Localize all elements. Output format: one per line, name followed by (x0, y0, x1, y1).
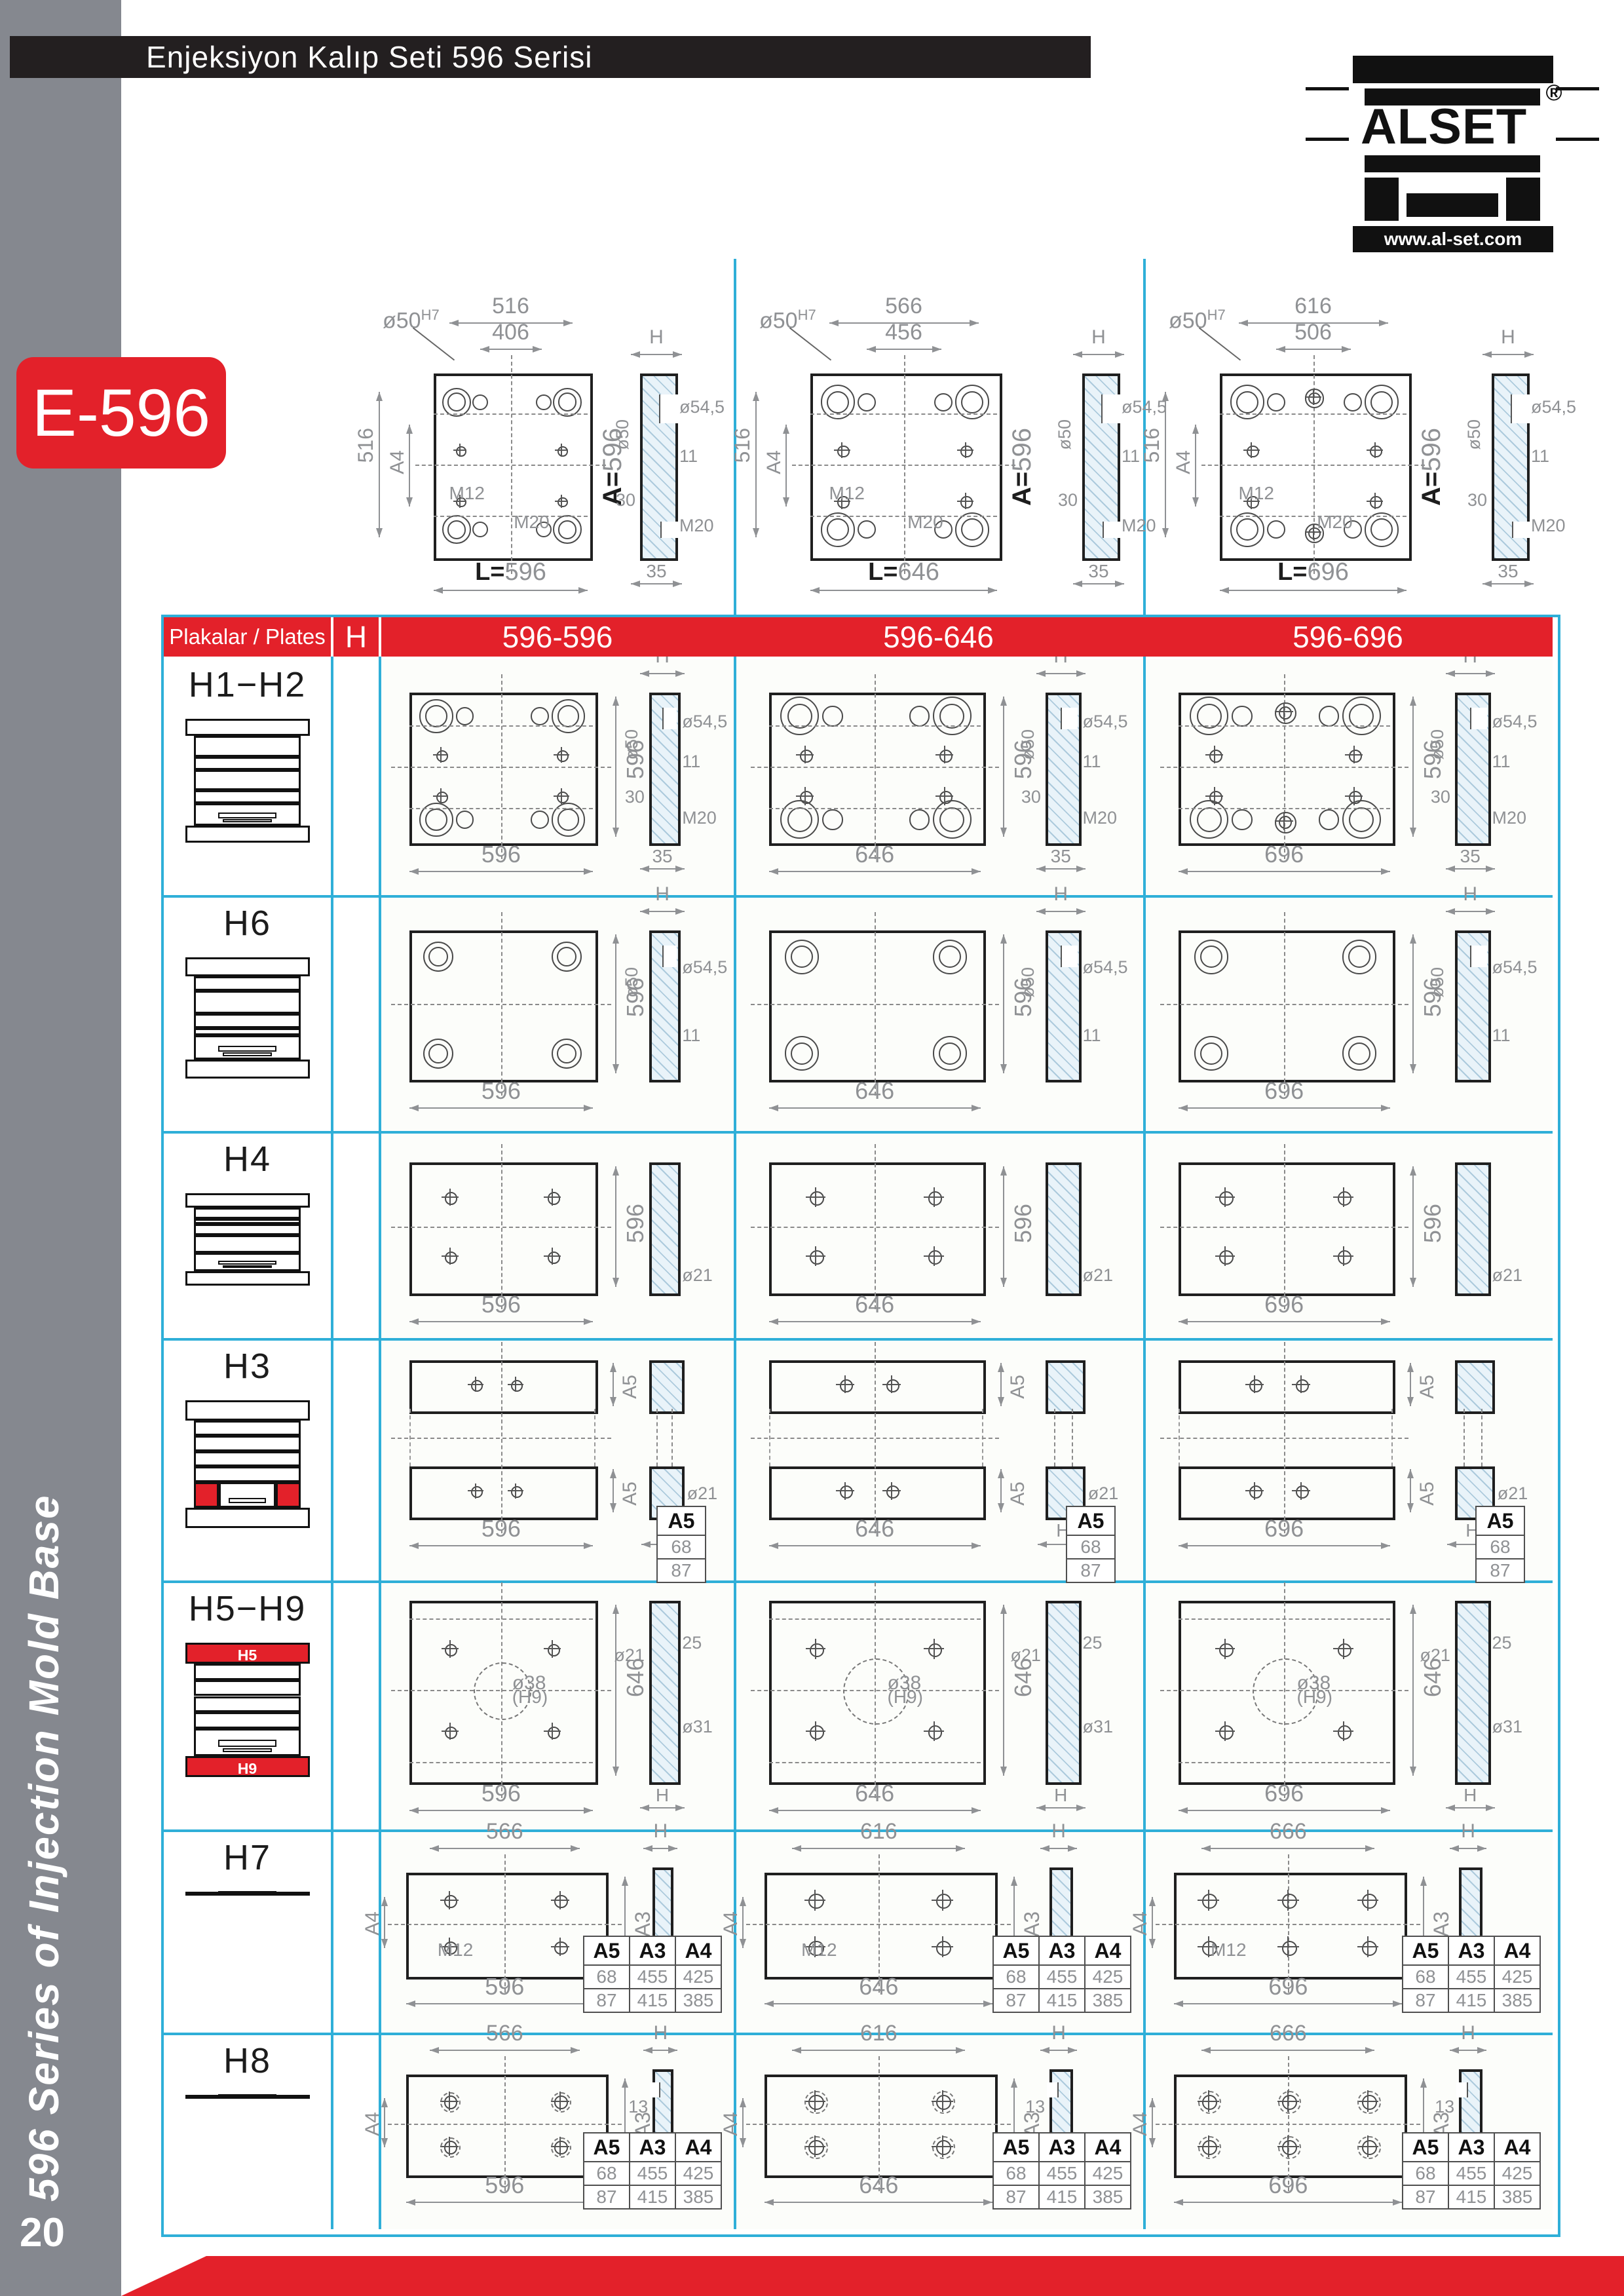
dimension-label: 696 (1174, 2172, 1402, 2199)
table-header-h: H (333, 617, 379, 657)
row-label: H6 (164, 903, 331, 944)
dimension-label: 566 (430, 1819, 580, 1845)
side-label: 11 (1083, 1025, 1101, 1046)
drawing-cell: 666A4A3M12696HM12A5A3A46845542587415385 (1146, 1832, 1553, 2033)
side-label: 13 (597, 2097, 648, 2117)
hole-cross-line (1214, 746, 1215, 763)
dimension-label: 596 (622, 1204, 649, 1243)
center-line (751, 1004, 999, 1005)
mini-table-header: A5 (584, 2133, 630, 2162)
hole-cross-line (815, 1721, 816, 1741)
side-label: 11 (1083, 752, 1101, 772)
side-label: 13 (1403, 2097, 1454, 2117)
side-dim-bottom: 35 (1032, 846, 1089, 867)
hole-mark (810, 1250, 824, 1265)
hole-mark (548, 1644, 560, 1656)
hole-mark (552, 1039, 582, 1069)
hole-mark (1342, 697, 1381, 735)
dimension-line (1450, 1848, 1486, 1849)
stack-ejector (219, 1482, 276, 1508)
dimension-label: 646 (769, 1291, 981, 1318)
hole-cross-line (515, 1377, 516, 1392)
row-label-cell: H1−H2 (164, 657, 331, 895)
drawing-cell: ø38(H9)64664625ø31ø21H (736, 1583, 1143, 1829)
side-dim-h: H (1446, 1820, 1490, 1843)
side-label: ø21 (1492, 1265, 1523, 1286)
mold-stack-icon (185, 1193, 310, 1286)
dashed-line (1179, 725, 1390, 727)
dimension-line (1179, 1545, 1390, 1546)
mini-table-value: 415 (630, 2185, 675, 2209)
hole-mark (531, 811, 549, 829)
side-label: 25 (682, 1633, 702, 1653)
row-label-cell: H6 (164, 895, 331, 1131)
stack-plate (185, 1193, 310, 1208)
mini-table-value: 68 (1476, 1535, 1524, 1559)
hole-cross-line (934, 1246, 935, 1266)
side-label: ø54,5 (1492, 712, 1538, 732)
hole-mark (1194, 1036, 1228, 1070)
side-label: 11 (682, 752, 700, 772)
dimension-label: A5 (619, 1375, 641, 1399)
spec-table: H1−H2475767778797107117127596596Hø54,511… (0, 0, 1624, 2296)
ejector-plate (218, 1046, 276, 1052)
hole-inner (791, 946, 813, 968)
rail-front-view (769, 1466, 986, 1520)
hole-inner (557, 705, 579, 727)
dimension-line (769, 1107, 981, 1109)
center-line (1160, 1438, 1408, 1439)
mini-table-value: 68 (1403, 2162, 1448, 2185)
stack-plate (185, 1508, 310, 1528)
hole-mark (822, 809, 842, 830)
stack-plate (194, 1224, 301, 1235)
dimension-line (1410, 1469, 1411, 1512)
dashed-line (769, 1618, 981, 1620)
dimension-line (613, 1363, 614, 1406)
center-line (751, 767, 999, 768)
row-label-cell: H5−H9H5H9 (164, 1580, 331, 1829)
dimension-line (615, 1605, 616, 1776)
side-label: ø21 (1399, 1645, 1450, 1666)
dimension-label: A3 (1020, 1911, 1044, 1937)
mini-table-value: 425 (1494, 1965, 1540, 1989)
hole-cross-line (1287, 1936, 1289, 1958)
dimension-label: ø50 (1427, 967, 1448, 998)
dimension-label: 646 (769, 1780, 981, 1807)
dimension-label: 646 (769, 1077, 981, 1105)
mini-table-header: A3 (630, 1936, 675, 1965)
rail-front-view (1179, 1466, 1395, 1520)
dashed-line (656, 1409, 658, 1467)
side-dim-h: H (1442, 883, 1499, 906)
plate-side-view (649, 1601, 681, 1786)
dimension-label: A4 (362, 1911, 384, 1936)
rail-front-view (769, 1360, 986, 1414)
hole-mark (785, 940, 819, 974)
plate-front-view (1179, 1162, 1395, 1296)
hole-cross-line (844, 1375, 846, 1393)
dimension-label: 646 (765, 1973, 992, 2000)
dashed-line (769, 725, 981, 727)
a5-a3-a4-table: A5A3A46845542587415385 (1402, 1936, 1541, 2013)
plate-label: M12 (801, 1940, 837, 1961)
dimension-line (769, 1321, 981, 1322)
dimension-label: 666 (1201, 1819, 1374, 1845)
hole-mark (531, 707, 549, 725)
mini-table-value: 415 (1448, 2185, 1494, 2209)
hole-inner (1197, 807, 1222, 832)
dimension-label: 696 (1179, 841, 1390, 868)
mini-table-header: A5 (993, 1936, 1039, 1965)
dimension-label: A4 (1129, 2112, 1152, 2136)
table-header-col-596-596: 596-596 (381, 617, 734, 657)
ejector-plate (229, 1498, 266, 1504)
hole-inner (939, 946, 961, 968)
mini-table-value: 87 (993, 1989, 1039, 2012)
plate-side-view (649, 1162, 681, 1296)
hole-cross-line (1367, 1890, 1369, 1911)
stack-plate (194, 757, 301, 770)
hole-cross-line (944, 787, 945, 805)
dimension-line (615, 934, 616, 1073)
hole-inner (1348, 946, 1370, 968)
hole-mark (436, 750, 448, 762)
dashed-line (769, 808, 981, 809)
dimension-line (1152, 2098, 1153, 2147)
side-label: 11 (1492, 1025, 1511, 1046)
drawing-cell: 596596Hø54,511ø50 (381, 898, 734, 1131)
dimension-line (640, 911, 685, 912)
mini-table-header: A3 (630, 2133, 675, 2162)
dimension-line (1412, 1605, 1414, 1776)
side-label: ø21 (1498, 1483, 1528, 1504)
hole-mark (1362, 1941, 1377, 1956)
side-label: ø54,5 (1083, 712, 1128, 732)
hole-mark (1232, 809, 1252, 830)
hole-cross-line (559, 1938, 561, 1956)
hole-inner (428, 1044, 448, 1063)
dashed-line (769, 1762, 981, 1763)
hole-cross-line (942, 1890, 943, 1911)
dashed-line (1054, 1409, 1055, 1467)
hole-mark (471, 1486, 483, 1498)
hole-cross-line (552, 1248, 553, 1265)
side-dim-h: H (1036, 1820, 1081, 1843)
dimension-label: 596 (1010, 1204, 1037, 1243)
a5-table: A56887 (1475, 1506, 1525, 1583)
hole-mark (822, 706, 842, 726)
dimension-label: A4 (1129, 1911, 1152, 1936)
hole-inner (787, 807, 812, 832)
stack-plate (194, 1014, 301, 1028)
hole-cross-line (1343, 1246, 1344, 1266)
hole-mark (554, 1895, 568, 1909)
side-label: 11 (682, 1025, 700, 1046)
stack-plate-label: H5 (187, 1645, 308, 1662)
hole-inner (557, 809, 579, 830)
stack-plate (194, 1421, 301, 1436)
rail-side-view (1046, 1360, 1086, 1414)
hole-mark (808, 1894, 823, 1909)
side-label: ø54,5 (682, 712, 727, 732)
side-dim-h: H (1446, 2022, 1490, 2044)
side-dim-h: H (1036, 2022, 1081, 2044)
stack-plate (194, 1466, 301, 1482)
dimension-label: A3 (1429, 1911, 1454, 1937)
mini-table-value: 87 (1067, 1559, 1115, 1582)
hole-mark (419, 699, 453, 733)
side-label: M20 (1083, 808, 1118, 828)
hole-inner (939, 1043, 961, 1065)
center-line (1160, 1004, 1408, 1005)
a5-a3-a4-table: A5A3A46845542587415385 (992, 2132, 1131, 2210)
hole-mark (939, 750, 953, 763)
dimension-label: 596 (406, 1973, 603, 2000)
dashed-line (409, 1618, 593, 1620)
center-line (391, 1004, 611, 1005)
center-line (391, 767, 611, 768)
dashed-line (409, 725, 593, 727)
dimension-line (1036, 868, 1086, 870)
dimension-label: 696 (1174, 1973, 1402, 2000)
counterbore-notch (1470, 946, 1486, 967)
mini-table-header: A3 (1039, 1936, 1085, 1965)
row-label: H3 (164, 1346, 331, 1387)
row-label-cell: H4 (164, 1131, 331, 1338)
center-line (1156, 1924, 1420, 1925)
dimension-line (1412, 697, 1414, 837)
hole-cross-line (944, 746, 945, 763)
a5-table: A56887 (656, 1506, 706, 1583)
center-bore-label: (H9) (512, 1687, 548, 1708)
hole-mark (1342, 1036, 1376, 1070)
dashed-line (409, 1762, 593, 1763)
dimension-line (430, 1848, 580, 1849)
mini-table-value: 87 (657, 1559, 706, 1582)
plate-label: M12 (438, 1940, 473, 1961)
hole-cross-line (1343, 1187, 1344, 1207)
bore-notch (1047, 2082, 1058, 2097)
dimension-line (406, 2202, 603, 2203)
hole-cross-line (1300, 1375, 1302, 1393)
drawing-cell: 646596Hø54,511ø50 (736, 898, 1143, 1131)
dimension-line (1179, 871, 1390, 872)
mini-table-value: 385 (1494, 1989, 1540, 2012)
dimension-line (430, 2050, 580, 2051)
dimension-line (640, 673, 685, 674)
side-dim-bottom: H (1442, 1785, 1499, 1806)
drawing-cell: 616A4A3646Hø12,513ø18,5A5A3A468455425874… (736, 2035, 1143, 2229)
mini-table-header: A4 (675, 1936, 721, 1965)
side-dim-bottom: 35 (636, 846, 689, 867)
hole-cross-line (559, 1891, 561, 1909)
a5-a3-a4-table: A5A3A46845542587415385 (583, 1936, 722, 2013)
plate-front-view (406, 1873, 609, 1980)
catalog-page: { "page": { "title": "Enjeksiyon Kalıp S… (0, 0, 1624, 2296)
hole-inner (1200, 1043, 1222, 1065)
dimension-line (1003, 697, 1004, 837)
dashed-line (1481, 1409, 1482, 1467)
row-label: H7 (164, 1837, 331, 1878)
bottom-red-band (121, 2256, 1624, 2296)
dimension-label: 646 (769, 841, 981, 868)
center-line (746, 1924, 1011, 1925)
hole-mark (552, 699, 586, 733)
drawing-cell: 566A4A3M12596HM12A5A3A46845542587415385 (381, 1832, 734, 2033)
center-line (388, 2124, 622, 2125)
hole-cross-line (1214, 787, 1215, 805)
bore-notch (1456, 2082, 1467, 2097)
mini-table-value: 87 (993, 2185, 1039, 2209)
counterbore-notch (662, 946, 677, 967)
hole-inner (557, 947, 576, 966)
side-label: M20 (682, 808, 717, 828)
side-label: 11 (1492, 752, 1511, 772)
dimension-line (1450, 2050, 1486, 2051)
stack-plate (194, 991, 301, 1014)
dimension-label: ø50 (1427, 729, 1448, 760)
mini-table-header: A5 (1067, 1506, 1115, 1535)
dimension-line (1179, 1321, 1390, 1322)
side-dim-h: H (1032, 883, 1089, 906)
dimension-label: 616 (792, 1819, 965, 1845)
plate-side-view (1455, 1162, 1491, 1296)
dimension-label: A4 (720, 1911, 742, 1936)
dimension-label: 566 (430, 2021, 580, 2046)
stack-plate (185, 1400, 310, 1421)
dimension-label: 596 (1419, 1204, 1446, 1243)
dimension-line (1174, 2003, 1402, 2004)
dimension-line (1000, 1469, 1002, 1512)
drawing-cell: ø38(H9)69664625ø31ø21H (1146, 1583, 1553, 1829)
stack-plate (194, 1451, 301, 1466)
mold-stack-icon: H5H9 (185, 1643, 310, 1777)
hole-cross-line (1283, 813, 1285, 830)
mini-table-header: A5 (993, 2133, 1039, 2162)
side-label: ø21 (990, 1645, 1041, 1666)
dimension-line (615, 1166, 616, 1287)
hole-cross-line (1224, 1187, 1226, 1207)
mini-table-header: A4 (1494, 1936, 1540, 1965)
dashed-line (1179, 808, 1390, 809)
hole-cross-line (1208, 1890, 1209, 1911)
hole-mark (909, 706, 930, 726)
dimension-line (640, 868, 685, 870)
dimension-label: 666 (1201, 2021, 1374, 2046)
hole-inner (1349, 807, 1374, 832)
center-line (751, 1438, 999, 1439)
mini-table-header: A4 (1494, 2133, 1540, 2162)
mold-stack-icon (185, 2095, 310, 2177)
mini-table-value: 385 (1085, 2185, 1131, 2209)
mini-table-value: 415 (1039, 1989, 1085, 2012)
mini-table-header: A5 (584, 1936, 630, 1965)
side-label: 30 (594, 787, 645, 807)
mini-table-value: 68 (584, 2162, 630, 2185)
stack-rail (276, 1482, 301, 1508)
hole-mark (909, 809, 930, 830)
hole-mark (1278, 2091, 1301, 2114)
hole-inner (425, 809, 447, 830)
hole-cross-line (934, 1187, 935, 1207)
dimension-line (792, 2050, 965, 2051)
ejector-plate (223, 1052, 273, 1056)
dimension-line (769, 1545, 981, 1546)
mini-table-value: 87 (1403, 2185, 1448, 2209)
mini-table-value: 68 (584, 1965, 630, 1989)
stack-ejector-box (194, 1253, 301, 1272)
stack-ejector-box (194, 803, 301, 826)
hole-cross-line (515, 1483, 516, 1499)
row-label-cell: H7 (164, 1829, 331, 2033)
dimension-label: 596 (409, 1515, 593, 1542)
dimension-label: 596 (409, 1077, 593, 1105)
a5-a3-a4-table: A5A3A46845542587415385 (992, 1936, 1131, 2013)
hole-mark (804, 2136, 827, 2159)
dashed-line (1179, 1618, 1390, 1620)
dimension-line (1179, 1810, 1390, 1811)
stack-plate (185, 1060, 310, 1079)
dimension-line (769, 1810, 981, 1811)
hole-cross-line (552, 1723, 553, 1740)
drawing-cell: A5A5646ø21HA56887 (736, 1341, 1143, 1580)
plate-side-view (1455, 1601, 1491, 1786)
hole-cross-line (815, 1246, 816, 1266)
dimension-label: 696 (1179, 1780, 1390, 1807)
drawing-cell: ø38(H9)59664625ø31ø21H (381, 1583, 734, 1829)
hole-cross-line (552, 1640, 553, 1657)
mini-table-header: A4 (1085, 1936, 1131, 1965)
side-dim-h: H (639, 2022, 681, 2044)
side-dim-bottom: H (636, 1785, 689, 1806)
plate-front-view (1174, 1873, 1407, 1980)
hole-mark (939, 791, 953, 804)
dimension-line (406, 2003, 603, 2004)
table-header-plates: Plakalar / Plates (164, 617, 331, 657)
dimension-line (1201, 1848, 1374, 1849)
a5-a3-a4-table: A5A3A46845542587415385 (583, 2132, 722, 2210)
hole-cross-line (1208, 1936, 1209, 1958)
center-line (1156, 2124, 1420, 2125)
dimension-line (792, 1848, 965, 1849)
stack-ejector-box (194, 1035, 301, 1060)
hole-mark (471, 1380, 483, 1392)
side-dim-h: H (636, 883, 689, 906)
hole-mark (840, 1379, 853, 1392)
dimension-line (1003, 934, 1004, 1073)
hole-cross-line (1300, 1482, 1302, 1500)
dimension-line (643, 2050, 677, 2051)
mini-table-header: A4 (1085, 2133, 1131, 2162)
hole-inner (428, 947, 448, 966)
stack-plate (194, 1208, 301, 1219)
side-dim-bottom: H (1032, 1785, 1089, 1806)
dashed-line (1179, 1762, 1390, 1763)
dashed-line (409, 808, 593, 809)
mini-table-value: 425 (675, 2162, 721, 2185)
counterbore-notch (662, 708, 677, 730)
hole-cross-line (1353, 787, 1355, 805)
dimension-line (1003, 1166, 1004, 1287)
hole-mark (933, 800, 972, 839)
hole-mark (548, 1192, 560, 1204)
hole-cross-line (440, 747, 442, 763)
side-dim-bottom: 35 (1442, 846, 1499, 867)
hole-mark (1209, 791, 1222, 804)
hole-mark (1219, 1725, 1234, 1740)
hole-cross-line (814, 1890, 816, 1911)
